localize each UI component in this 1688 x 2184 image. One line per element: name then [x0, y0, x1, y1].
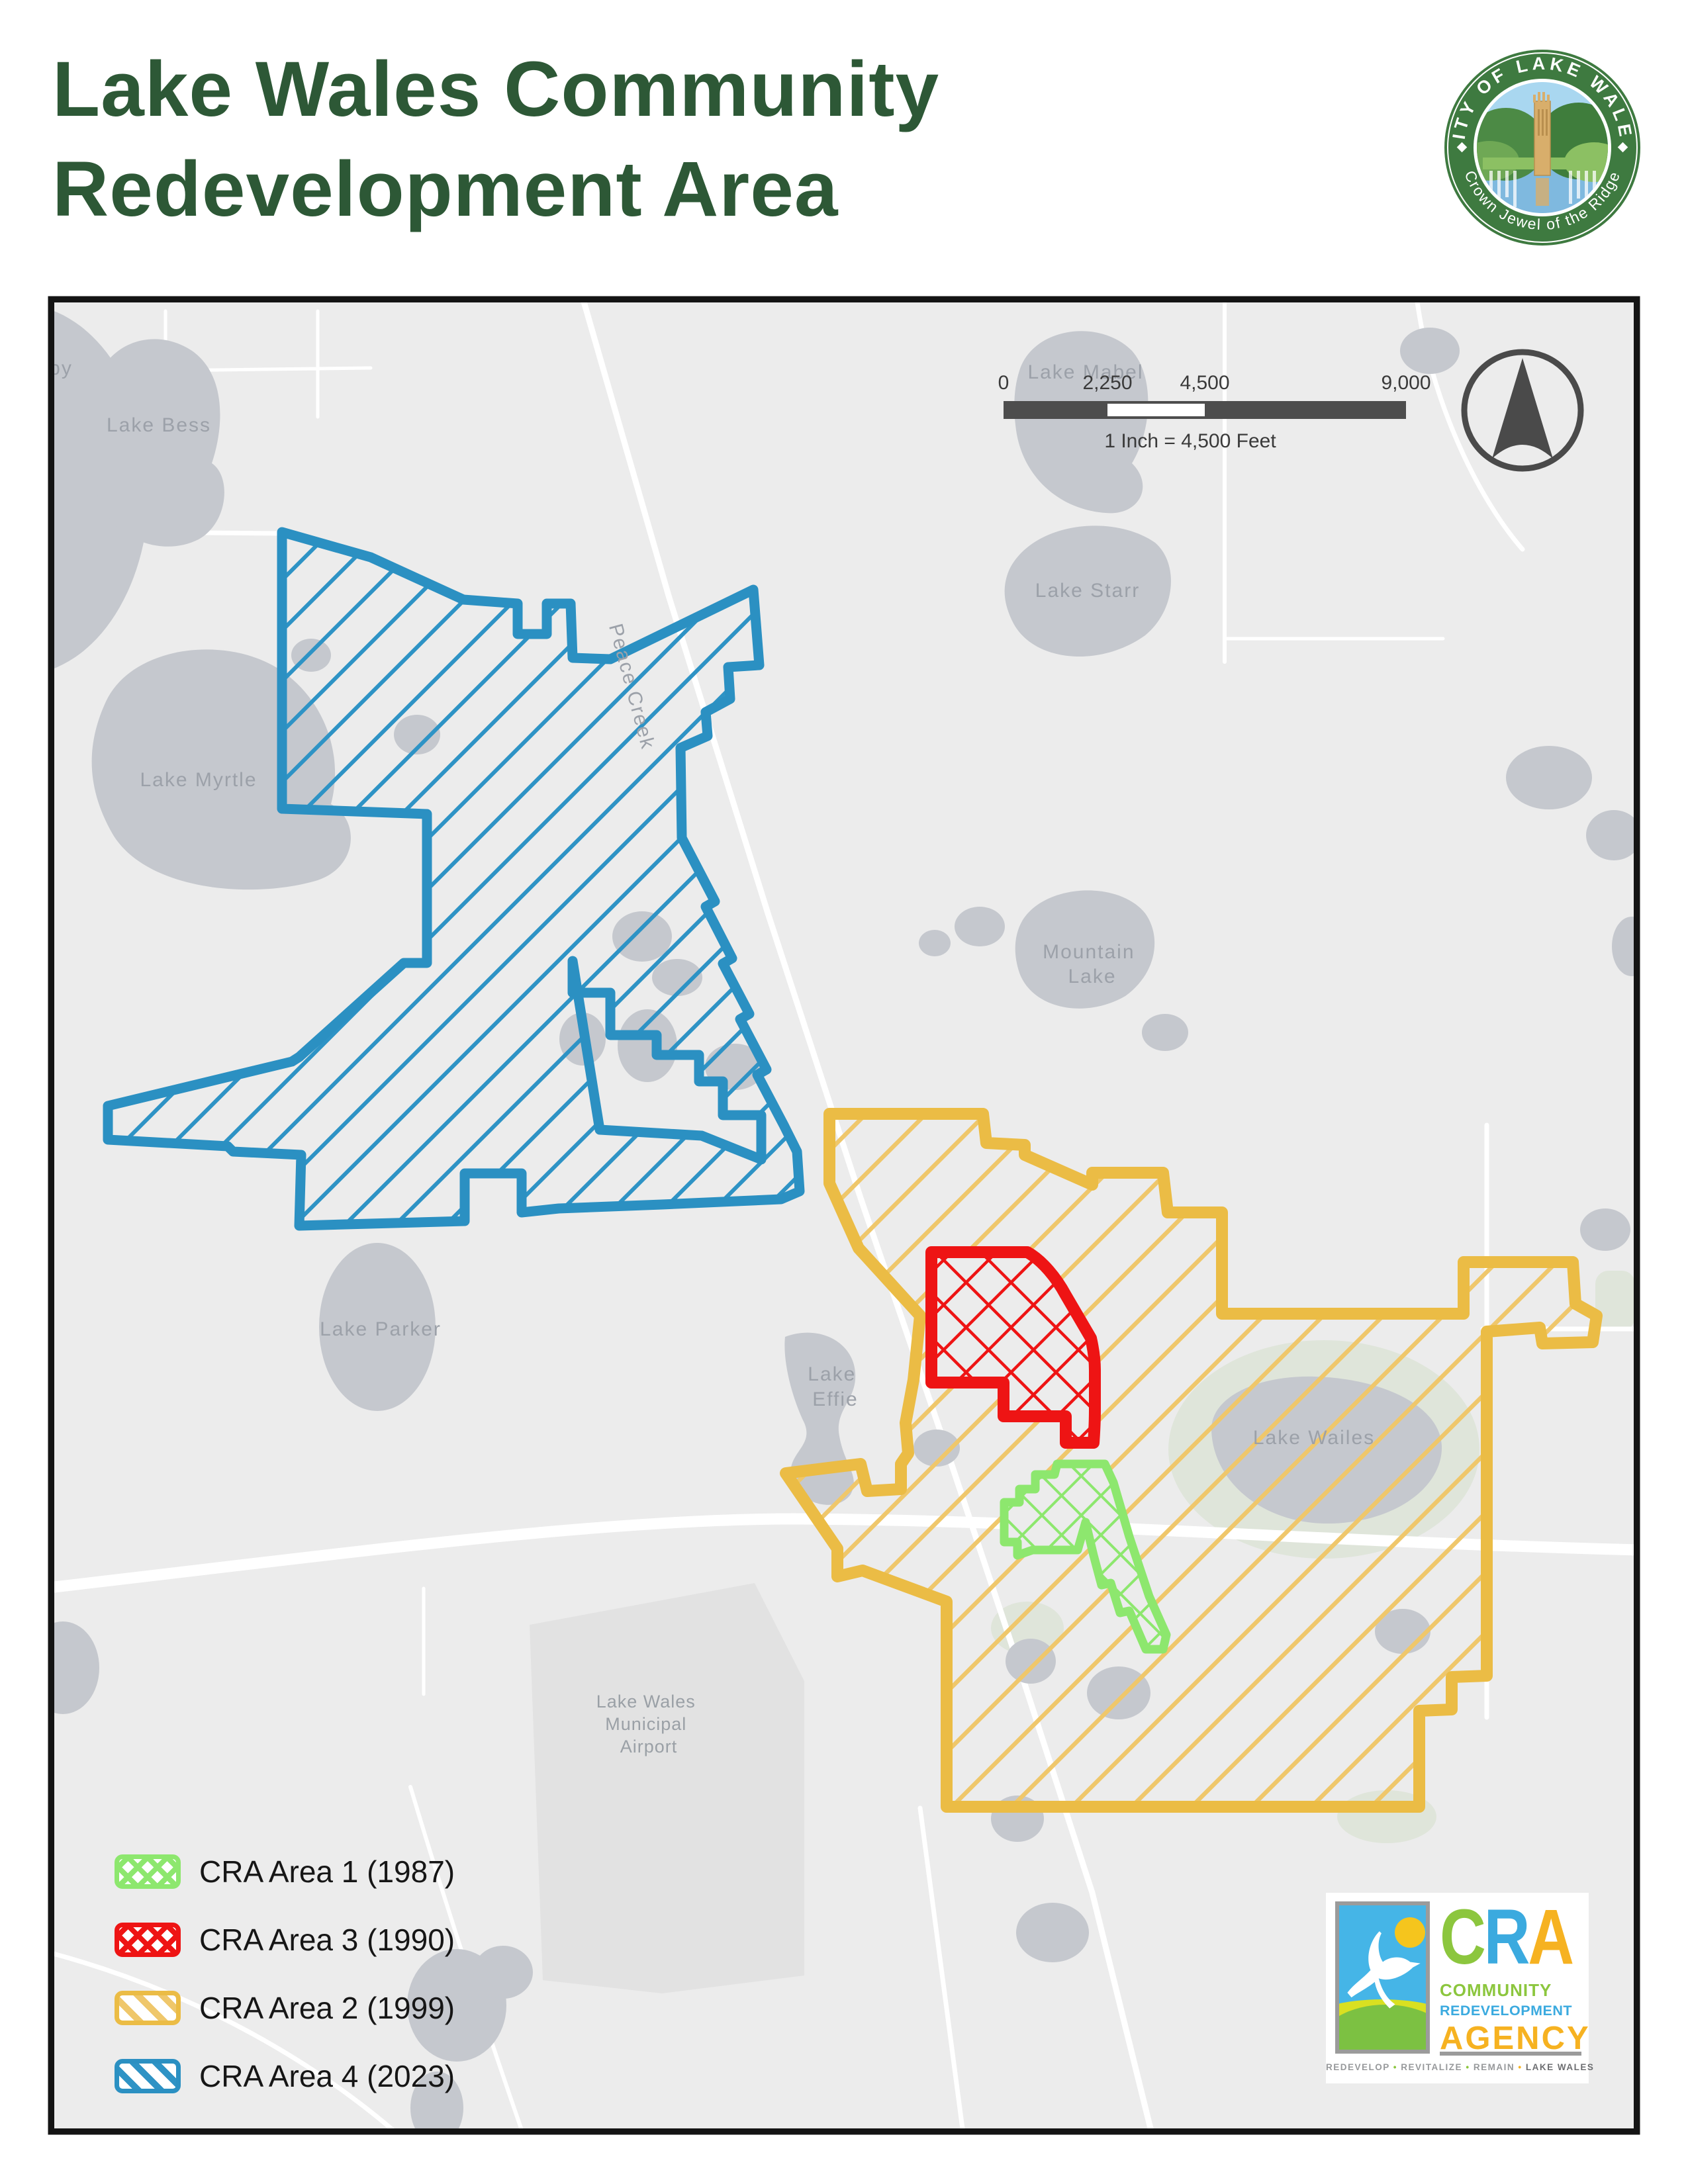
- cra-logo-bird-image: [1335, 1901, 1430, 2054]
- cra-community-text: COMMUNITY: [1440, 1980, 1581, 2001]
- crane-bird-icon: [1342, 1928, 1424, 2017]
- cra-logo-divider: [1440, 2052, 1581, 2056]
- legend-label-cra4: CRA Area 4 (2023): [199, 2058, 455, 2094]
- cra2-swatch-icon: [115, 1991, 181, 2025]
- cra-tagline: REDEVELOP • REVITALIZE • REMAIN • LAKE W…: [1326, 2062, 1589, 2072]
- cra-redevelopment-text: REDEVELOPMENT: [1440, 2003, 1581, 2019]
- legend-label-cra2: CRA Area 2 (1999): [199, 1990, 455, 2026]
- legend-label-cra1: CRA Area 1 (1987): [199, 1854, 455, 1889]
- cra1-swatch-icon: [115, 1854, 181, 1889]
- legend-label-cra3: CRA Area 3 (1990): [199, 1922, 455, 1958]
- legend-item-cra4[interactable]: CRA Area 4 (2023): [115, 2042, 455, 2110]
- cra-agency-logo: CRA COMMUNITY REDEVELOPMENT AGENCY REDEV…: [1326, 1893, 1589, 2083]
- legend-item-cra3[interactable]: CRA Area 3 (1990): [115, 1905, 455, 1974]
- cra-acronym: CRA: [1440, 1898, 1556, 1976]
- cra4-swatch-icon: [115, 2059, 181, 2093]
- cra3-swatch-icon: [115, 1923, 181, 1957]
- map-legend: CRA Area 1 (1987) CRA Area 3 (1990) CRA …: [115, 1837, 455, 2110]
- legend-item-cra1[interactable]: CRA Area 1 (1987): [115, 1837, 455, 1905]
- city-seal: CITY OF LAKE WALES Crown Jewel of the Ri…: [1443, 48, 1642, 247]
- legend-item-cra2[interactable]: CRA Area 2 (1999): [115, 1974, 455, 2042]
- page-title: Lake Wales Community Redevelopment Area: [52, 40, 939, 240]
